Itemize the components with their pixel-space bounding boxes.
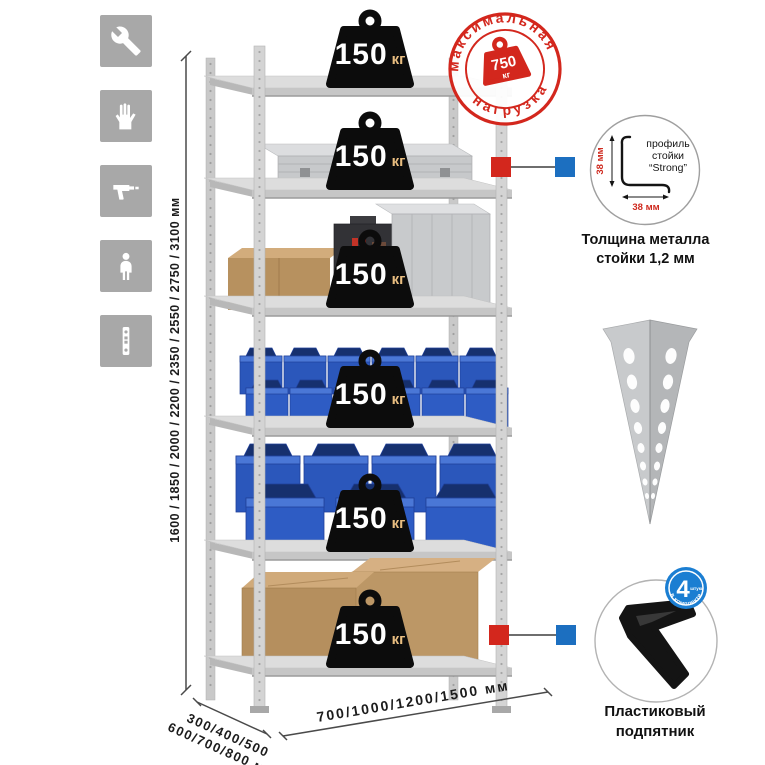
- load-unit: кг: [392, 51, 406, 68]
- quantity-value: 4: [676, 576, 690, 603]
- profile-dim-horizontal: 38 мм: [632, 202, 659, 213]
- height-dimension-label: 1600 / 1850 / 2000 / 2200 / 2350 / 2550 …: [168, 50, 182, 690]
- shelf-load-badge-6: 150кг: [310, 588, 430, 668]
- foot-caption: Пластиковый подпятник: [575, 702, 735, 741]
- load-value: 150: [335, 502, 388, 535]
- gloves-glyph: [110, 100, 142, 132]
- profile-caption-line1: Толщина металла: [558, 231, 733, 250]
- quantity-badge: 4 штуки в комплекте: [665, 567, 707, 609]
- product-infographic: 1600 / 1850 / 2000 / 2200 / 2350 / 2550 …: [0, 0, 765, 765]
- shelf-load-badge-5: 150кг: [310, 472, 430, 552]
- profile-caption: Толщина металла стойки 1,2 мм: [558, 231, 733, 269]
- load-unit: кг: [392, 515, 406, 532]
- load-value: 150: [335, 618, 388, 651]
- wrench-glyph: [110, 25, 142, 57]
- foot-caption-line1: Пластиковый: [575, 702, 735, 722]
- perforated-upright-glyph: [110, 325, 142, 357]
- profile-label-line3: “Strong”: [649, 162, 687, 174]
- load-unit: кг: [392, 153, 406, 170]
- plastic-foot-circle: 4 штуки в комплекте: [592, 560, 734, 712]
- person-glyph: [110, 250, 142, 282]
- load-value: 150: [335, 140, 388, 173]
- blue-marker-bottom: [556, 625, 576, 645]
- shelf-load-badge-2: 150кг: [310, 110, 430, 190]
- shelf-load-badge-3: 150кг: [310, 228, 430, 308]
- person-icon: [100, 240, 152, 292]
- profile-label-line1: профиль: [646, 138, 690, 150]
- load-value: 150: [335, 378, 388, 411]
- angle-upright-image: [595, 314, 705, 528]
- perforated-upright-icon: [100, 315, 152, 367]
- load-unit: кг: [392, 631, 406, 648]
- wrench-icon: [100, 15, 152, 67]
- profile-caption-line2: стойки 1,2 мм: [558, 250, 733, 269]
- max-load-stamp: максимальная нагрузка 750 кг: [438, 2, 572, 136]
- load-unit: кг: [392, 271, 406, 288]
- load-value: 150: [335, 38, 388, 71]
- profile-dim-vertical: 38 мм: [595, 147, 606, 174]
- quantity-small-label: штуки: [690, 586, 704, 591]
- drill-icon: [100, 165, 152, 217]
- load-value: 150: [335, 258, 388, 291]
- gloves-icon: [100, 90, 152, 142]
- shelf-load-badge-1: 150кг: [310, 8, 430, 88]
- foot-caption-line2: подпятник: [575, 722, 735, 742]
- load-unit: кг: [392, 391, 406, 408]
- profile-label-line2: стойки: [652, 150, 684, 162]
- profile-detail-circle: 38 мм 38 мм профиль стойки “Strong”: [582, 107, 708, 233]
- blue-marker-top: [555, 157, 575, 177]
- drill-glyph: [110, 175, 142, 207]
- shelf-load-badge-4: 150кг: [310, 348, 430, 428]
